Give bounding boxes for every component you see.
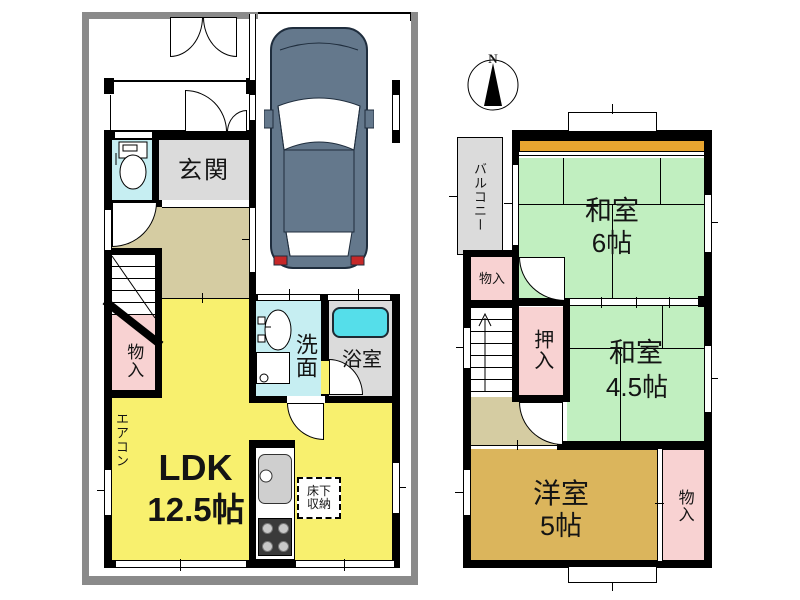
frame-right — [411, 12, 418, 585]
hall-ldk-line — [162, 298, 249, 299]
wall — [512, 395, 570, 402]
label-aircon: エアコン — [112, 404, 130, 476]
wall — [321, 301, 329, 361]
tick — [711, 378, 718, 379]
floor-plan: 玄関 LDK 12.5帖 洗面 浴室 物入 エアコン 床下 収納 N — [0, 0, 800, 600]
label-bath: 浴室 — [333, 348, 391, 374]
label-jroom45-size: 4.5帖 — [578, 371, 696, 403]
wall — [249, 301, 256, 403]
storage-divider — [657, 449, 663, 561]
wall — [563, 298, 570, 402]
toilet-icon — [115, 141, 151, 193]
window-parking — [392, 95, 400, 130]
porch-front-line — [110, 80, 250, 82]
tick — [504, 203, 513, 204]
label-jroom6-size: 6帖 — [568, 228, 656, 259]
drain-icon — [258, 372, 272, 384]
window-wroom-west — [463, 470, 471, 515]
label-storage-1f: 物入 — [120, 336, 146, 386]
tick — [289, 289, 290, 301]
label-jroom45-name: 和室 — [584, 337, 688, 371]
tick — [344, 559, 345, 571]
tick — [97, 490, 105, 491]
window-stairs-west — [463, 328, 471, 368]
window-ldk-south-2 — [296, 560, 394, 568]
burner — [278, 541, 289, 552]
tick — [180, 559, 181, 571]
tick — [711, 222, 718, 223]
wall — [557, 441, 712, 450]
window-ldk-east — [392, 463, 400, 513]
compass-north-label: N — [485, 52, 501, 67]
wall — [249, 440, 295, 447]
gate-right-leaf — [203, 17, 237, 57]
hallway-1f-lower — [162, 250, 249, 298]
door-gap — [287, 396, 325, 403]
tick — [601, 297, 602, 308]
bathtub — [332, 307, 389, 338]
window-hall-side — [249, 208, 256, 272]
wall — [512, 257, 519, 397]
window-bay-north — [568, 112, 657, 132]
door-entrance-child — [227, 110, 247, 132]
wall — [463, 300, 519, 308]
tick — [399, 487, 406, 488]
hall-wroom-line — [471, 445, 557, 446]
tick — [612, 582, 613, 591]
tick — [410, 13, 411, 21]
stairs-up-arrow — [471, 308, 512, 397]
label-entrance: 玄関 — [159, 155, 249, 187]
label-underfloor-2: 収納 — [307, 498, 331, 511]
window-balcony-door — [512, 165, 519, 245]
car-icon — [264, 18, 374, 276]
tick — [455, 492, 464, 493]
line — [519, 155, 705, 156]
sink-icon — [257, 305, 295, 355]
label-washroom: 洗面 — [291, 325, 319, 387]
wall — [104, 248, 162, 255]
tick — [655, 503, 664, 504]
window-ldk-south-1 — [116, 560, 246, 568]
window-bay-south — [568, 566, 657, 583]
wall — [463, 250, 471, 568]
window-hall-west — [104, 210, 112, 250]
label-storage-2f-bottom: 物入 — [671, 480, 697, 532]
entrance-step-line — [162, 207, 249, 208]
wall-post — [246, 78, 256, 94]
tick — [456, 347, 464, 348]
wall — [152, 140, 159, 202]
label-wroom-size: 5帖 — [520, 511, 602, 543]
burner — [262, 541, 273, 552]
wall — [155, 250, 162, 340]
window-jroom45-east — [704, 346, 712, 412]
window-toilet — [115, 131, 152, 139]
tick — [449, 196, 457, 197]
wall — [104, 390, 162, 398]
tick — [636, 297, 637, 308]
window-ldk-west — [104, 470, 112, 515]
window-bath — [328, 294, 390, 301]
label-ldk-size: 12.5帖 — [120, 490, 272, 530]
tick — [669, 297, 670, 308]
door-entrance-main — [185, 90, 227, 132]
frame-bottom — [82, 576, 418, 585]
tick — [612, 104, 613, 114]
tick — [358, 289, 359, 301]
window-entrance-side — [249, 95, 256, 120]
label-ldk-name: LDK — [128, 448, 263, 488]
parking-divider — [249, 14, 256, 80]
frame-left — [82, 12, 89, 585]
label-wroom-name: 洋室 — [505, 477, 617, 511]
label-balcony: バルコニー — [467, 146, 491, 248]
wall — [463, 250, 512, 257]
window-jroom6-east — [704, 195, 712, 252]
wall-post — [104, 78, 114, 94]
tick — [517, 440, 518, 450]
tick — [242, 239, 250, 240]
tick — [202, 293, 203, 303]
wall — [155, 340, 162, 398]
label-jroom6-name: 和室 — [560, 195, 664, 228]
burner — [278, 523, 289, 534]
wall — [392, 298, 400, 568]
label-closet: 押入 — [527, 320, 555, 380]
label-storage-2f-top: 物入 — [473, 271, 511, 288]
wall-post — [698, 296, 706, 307]
sliding-door-jrooms — [570, 298, 698, 306]
gate-left-leaf — [170, 17, 203, 57]
parking-entrance-line — [258, 12, 411, 14]
accent-strip — [519, 140, 705, 152]
porch-line — [110, 95, 111, 130]
